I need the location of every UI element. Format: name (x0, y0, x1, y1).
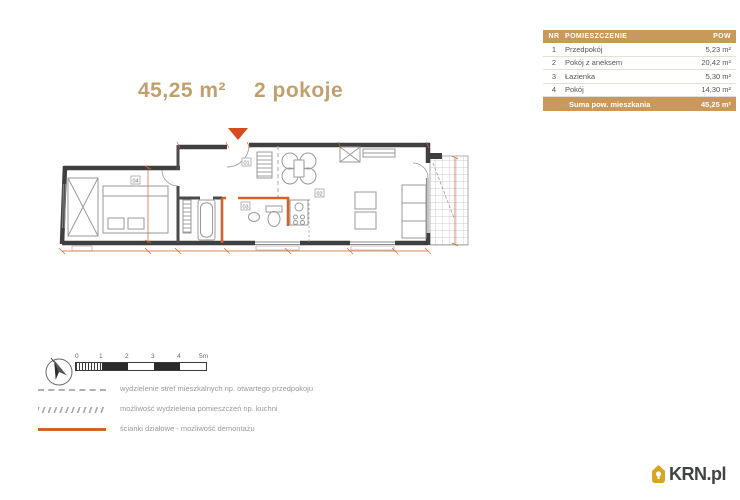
row-name: Łazienka (565, 72, 687, 81)
row-nr: 1 (543, 45, 565, 54)
room-label-bath: 03 (242, 204, 248, 210)
row-area: 5,23 m² (687, 45, 736, 54)
radiator (183, 200, 191, 233)
legend-item-kitchen: możliwość wydzielenia pomieszczeń np. ku… (38, 404, 458, 418)
windows (63, 178, 428, 245)
rooms-table-header: NR POMIESZCZENIE POW (543, 30, 736, 43)
table-row: 4 Pokój 14,30 m² (543, 84, 736, 98)
north-compass-icon (42, 352, 76, 388)
row-nr: 2 (543, 58, 565, 67)
stove-burner (294, 221, 298, 225)
floorplan-drawing: 01 02 03 04 (50, 118, 490, 276)
room-label-hall: 01 (243, 160, 249, 166)
scale-bar: 0 1 2 3 4 5m (75, 353, 209, 373)
table (355, 212, 376, 229)
scale-tick: 1 (99, 353, 103, 360)
table-row: 2 Pokój z aneksem 20,42 m² (543, 57, 736, 71)
room-label-living: 02 (316, 191, 322, 197)
krn-logo[interactable]: KRN.pl (651, 464, 726, 485)
table (355, 192, 376, 209)
row-name: Pokój z aneksem (565, 58, 687, 67)
col-nr: NR (543, 33, 565, 40)
sink (295, 203, 303, 211)
row-area: 14,30 m² (687, 85, 736, 94)
partition-walls-orange (222, 197, 289, 243)
scale-tick: 4 (177, 353, 181, 360)
zigzag-line-swatch (38, 407, 106, 413)
bedroom-door-swing (162, 170, 178, 186)
row-name: Przedpokój (565, 45, 687, 54)
table-row: 1 Przedpokój 5,23 m² (543, 43, 736, 57)
col-pow: POW (687, 33, 736, 40)
scale-tick: 5m (199, 353, 208, 360)
scale-bar-segments (75, 362, 207, 371)
rooms-table-summary: Suma pow. mieszkania 45,25 m² (543, 97, 736, 111)
orange-line-swatch (38, 428, 106, 438)
table-row: 3 Łazienka 5,30 m² (543, 70, 736, 84)
apartment-rooms-title: 2 pokoje (254, 79, 343, 103)
room-label-bedroom: 04 (132, 178, 138, 184)
bed (103, 186, 168, 233)
rooms-table: NR POMIESZCZENIE POW 1 Przedpokój 5,23 m… (543, 30, 736, 111)
stove-burner (301, 221, 305, 225)
row-area: 20,42 m² (687, 58, 736, 67)
scale-tick-labels: 0 1 2 3 4 5m (75, 353, 209, 362)
summary-value: 45,25 m² (687, 100, 736, 109)
scale-tick: 3 (151, 353, 155, 360)
entrance-arrow (228, 128, 248, 140)
col-name: POMIESZCZENIE (565, 33, 687, 40)
dashed-line-swatch (38, 389, 106, 398)
legend-item-partitions: ścianki działowe - możliwość demontażu (38, 424, 458, 438)
listing-floorplan-image: 45,25 m² 2 pokoje NR POMIESZCZENIE POW 1… (0, 0, 740, 500)
legend-item-zones: wydzielenie stref mieszkalnych np. otwar… (38, 384, 458, 398)
legend-label: możliwość wydzielenia pomieszczeń np. ku… (120, 404, 278, 413)
hall-wardrobe (257, 152, 272, 178)
balcony-door-swing (413, 163, 428, 178)
row-nr: 3 (543, 72, 565, 81)
washbasin (249, 213, 260, 222)
stove-burner (301, 215, 305, 219)
krn-logo-text: KRN.pl (669, 464, 726, 485)
dining-table (294, 160, 304, 177)
legend-label: ścianki działowe - możliwość demontażu (120, 424, 255, 433)
kitchen-counter (290, 200, 308, 225)
scale-tick: 0 (75, 353, 79, 360)
row-name: Pokój (565, 85, 687, 94)
window-sills (72, 246, 394, 251)
balcony (427, 153, 468, 245)
stove-burner (294, 215, 298, 219)
row-nr: 4 (543, 85, 565, 94)
apartment-area-title: 45,25 m² (138, 79, 226, 103)
krn-house-icon (651, 465, 666, 484)
scale-tick: 2 (125, 353, 129, 360)
legend-label: wydzielenie stref mieszkalnych np. otwar… (120, 384, 313, 393)
row-area: 5,30 m² (687, 72, 736, 81)
summary-label: Suma pow. mieszkania (565, 100, 687, 109)
sofa (402, 185, 426, 238)
